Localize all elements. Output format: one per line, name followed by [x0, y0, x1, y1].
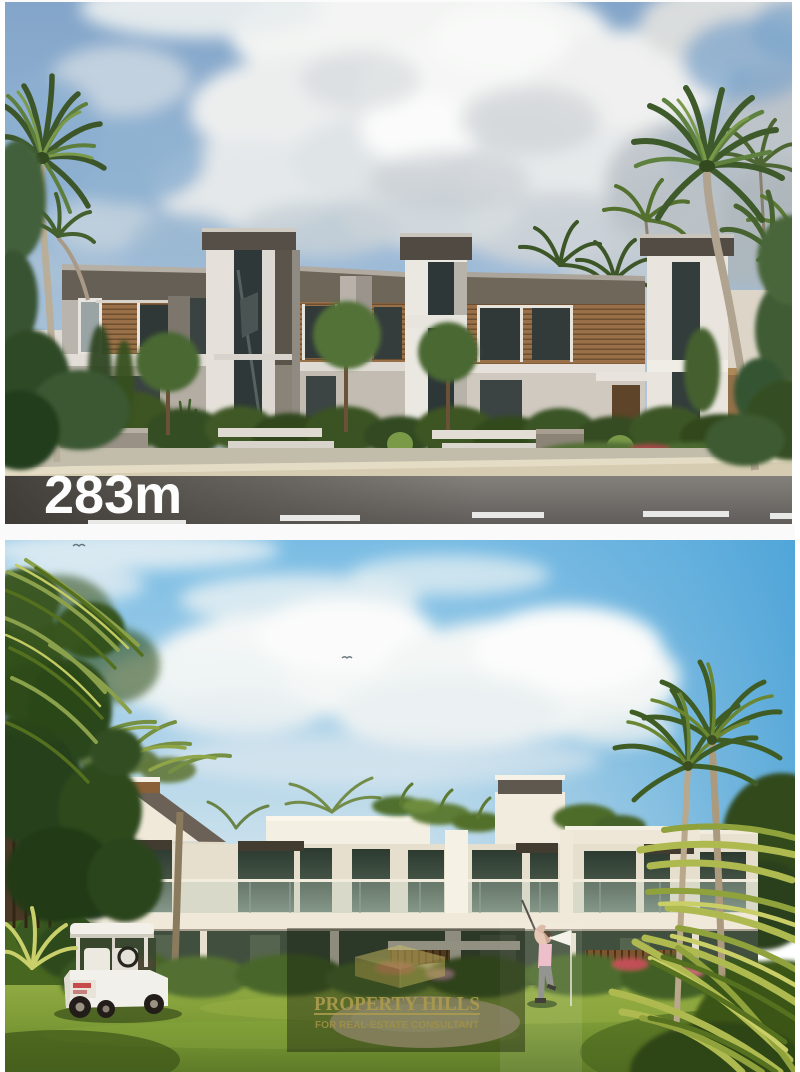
- svg-text:PROPERTY HILLS: PROPERTY HILLS: [314, 993, 480, 1015]
- svg-text:FOR REAL·ESTATE CONSULTANT: FOR REAL·ESTATE CONSULTANT: [315, 1020, 479, 1031]
- svg-text:283m: 283m: [44, 465, 182, 525]
